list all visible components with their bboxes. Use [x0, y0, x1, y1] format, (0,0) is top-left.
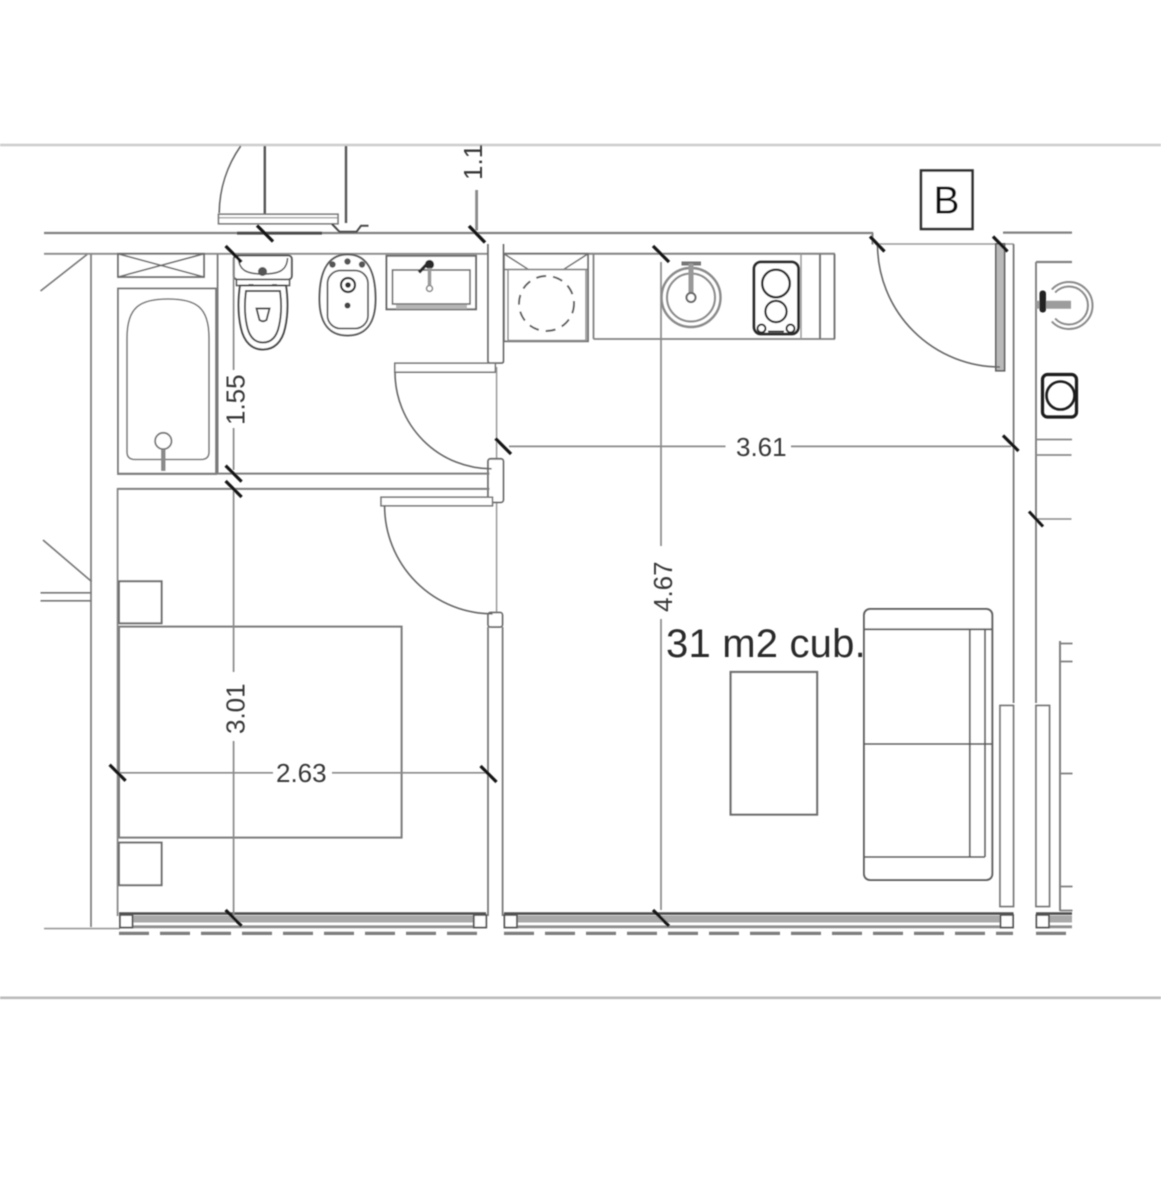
svg-text:B: B	[933, 180, 959, 223]
svg-text:1.1: 1.1	[458, 144, 488, 180]
svg-text:4.67: 4.67	[648, 561, 678, 612]
svg-text:1.55: 1.55	[221, 374, 251, 425]
svg-text:3.61: 3.61	[736, 432, 787, 462]
svg-text:3.01: 3.01	[221, 683, 251, 734]
svg-text:31 m2 cub.: 31 m2 cub.	[666, 622, 866, 666]
svg-text:2.63: 2.63	[276, 758, 327, 788]
